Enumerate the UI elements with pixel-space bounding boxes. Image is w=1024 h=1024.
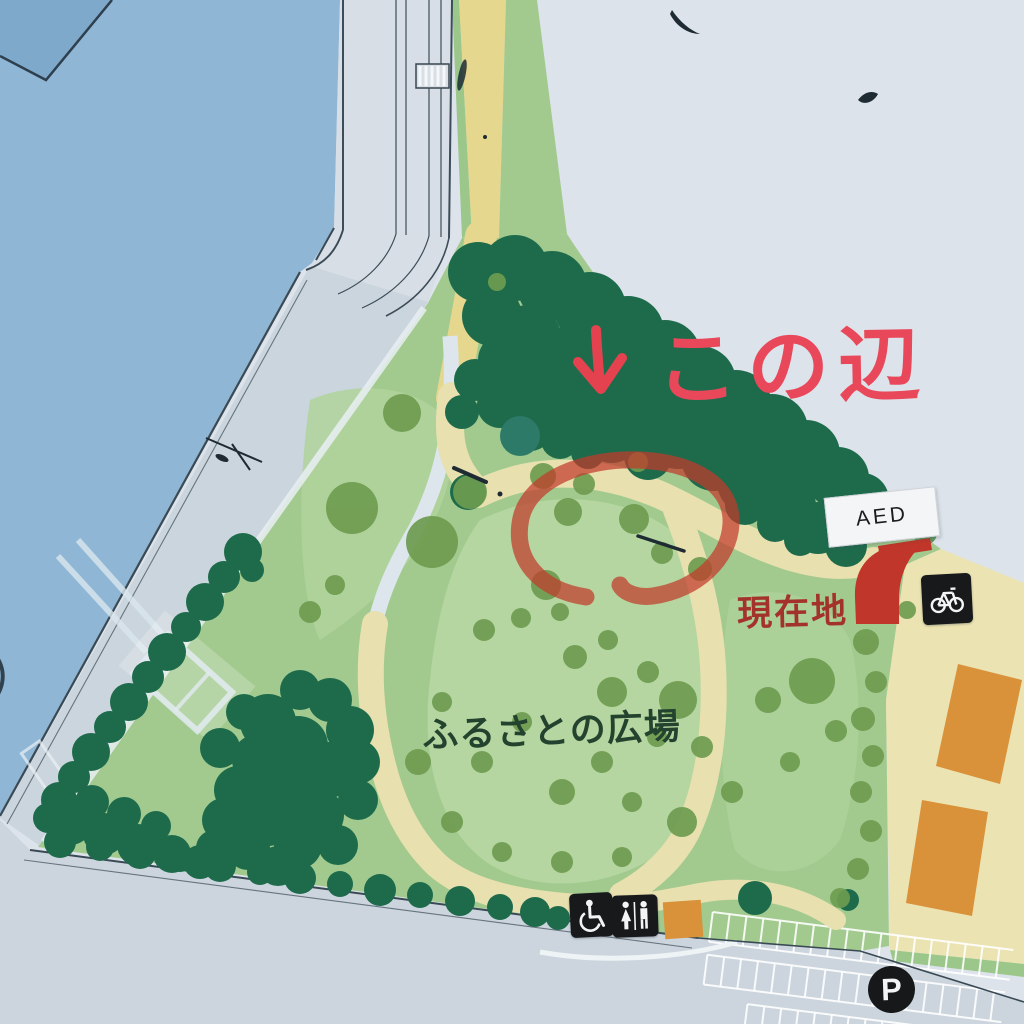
aed-label: AED [855,502,909,531]
wheelchair-glyph [575,897,608,933]
park-map-sign-photo: この辺 現在地 ふるさとの広場 AED ） [0,0,1024,1024]
plaza-name-label: ふるさとの広場 [421,698,681,759]
restroom-icon [611,894,658,938]
parking-letter: P [881,971,903,1008]
green-wedge [499,0,567,238]
teal-tree [500,416,540,456]
bicycle-parking-icon [921,573,974,626]
restroom-glyph [616,899,653,932]
building-small [663,900,703,940]
crosswalk [416,64,449,88]
wheelchair-accessible-icon [569,892,614,938]
handwritten-area-note: この辺 [655,298,930,422]
current-location-label: 現在地 [736,583,848,637]
bicycle-glyph [928,583,966,615]
